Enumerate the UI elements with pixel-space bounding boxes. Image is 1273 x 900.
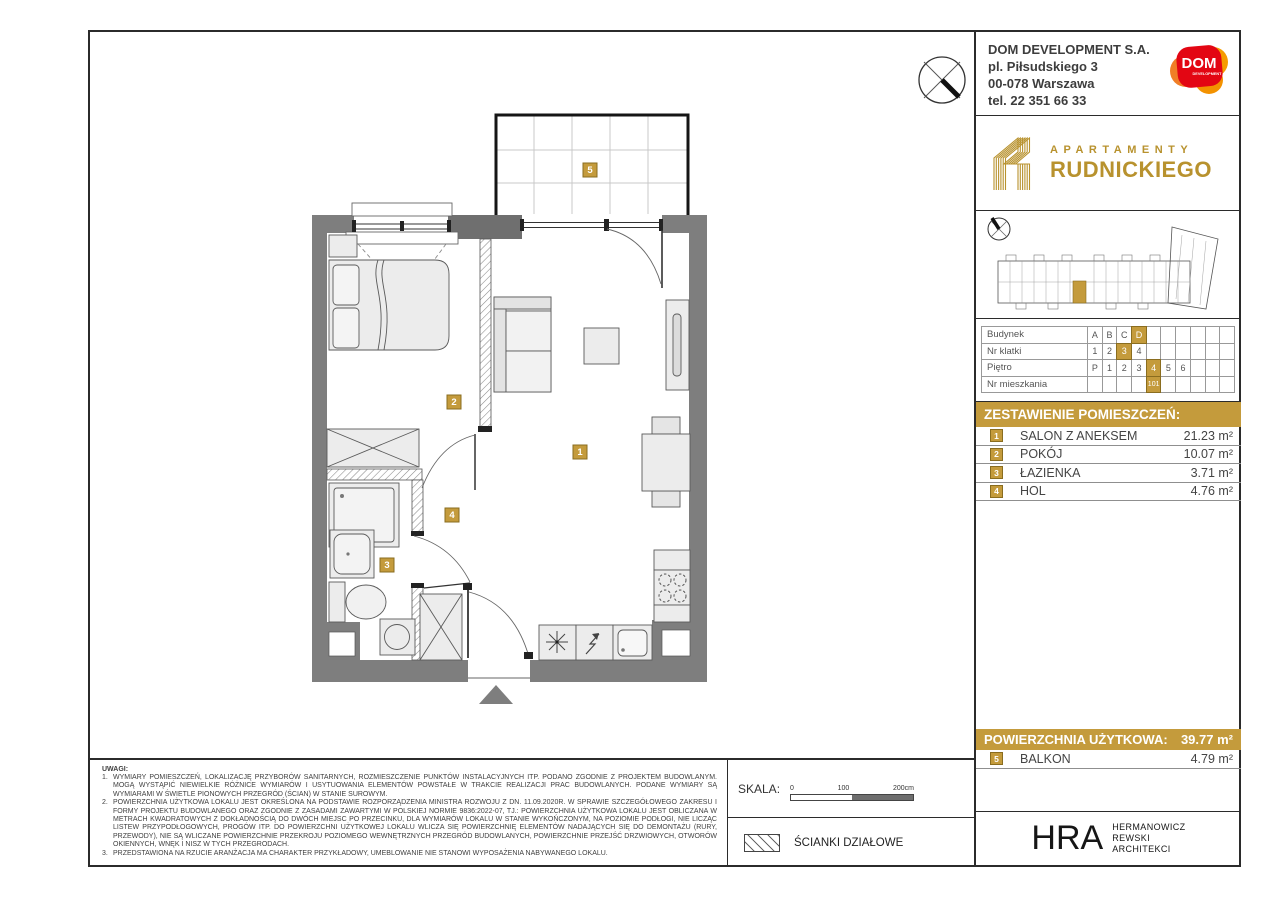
unit-table-cell <box>1146 326 1162 344</box>
unit-table-cell <box>1131 376 1147 394</box>
unit-table-row: Nr klatki1234 <box>982 344 1235 361</box>
unit-table-cell: C <box>1116 326 1132 344</box>
bathroom-door-swing <box>414 536 470 582</box>
scale-bar: 0 100 200cm <box>790 785 914 801</box>
unit-table-cell <box>1116 376 1132 394</box>
partition-hatch-icon <box>744 834 780 852</box>
architect-logo: HRA HERMANOWICZ REWSKI ARCHITEKCI <box>976 811 1241 865</box>
unit-table-cell: 6 <box>1175 359 1191 377</box>
unit-table-row: BudynekABCD <box>982 327 1235 344</box>
architect-line: REWSKI <box>1112 833 1185 844</box>
brand-line-rudnickiego: RUDNICKIEGO <box>1050 157 1212 183</box>
unit-table-cell <box>1160 376 1176 394</box>
rooms-header: ZESTAWIENIE POMIESZCZEŃ: <box>976 402 1241 427</box>
unit-table-cell <box>1102 376 1118 394</box>
salon-furniture <box>494 297 690 660</box>
unit-table-cell: 4 <box>1146 359 1162 377</box>
svg-text:DOM: DOM <box>1182 55 1217 72</box>
unit-table: BudynekABCDNr klatki1234PiętroP123456Nr … <box>976 319 1241 402</box>
scale-tick: 0 <box>790 785 794 792</box>
unit-table-cell <box>1087 376 1103 394</box>
scale-block: SKALA: 0 100 200cm <box>728 760 974 817</box>
room-area: 3.71 m² <box>1191 466 1241 480</box>
kitchen-unit-dishwasher <box>576 625 613 660</box>
balcony-row: 5 BALKON 4.79 m² <box>976 750 1241 769</box>
room-number-badge: 5 <box>990 752 1003 765</box>
room-row: 2 POKÓJ 10.07 m² <box>976 446 1241 465</box>
architect-abbr: HRA <box>1031 819 1103 858</box>
north-compass-icon <box>919 57 965 103</box>
room-number-badge: 4 <box>990 485 1003 498</box>
svg-text:DEVELOPMENT: DEVELOPMENT <box>1193 72 1223 76</box>
room-name: BALKON <box>1020 752 1071 766</box>
room-area: 10.07 m² <box>1184 447 1241 461</box>
rudnickiego-logo-mark <box>990 132 1040 194</box>
unit-table-cell <box>1160 326 1176 344</box>
room-row: 1 SALON Z ANEKSEM 21.23 m² <box>976 427 1241 446</box>
room-row: 3 ŁAZIENKA 3.71 m² <box>976 464 1241 483</box>
legend-block: ŚCIANKI DZIAŁOWE <box>728 817 974 867</box>
note-item: 2.POWIERZCHNIA UŻYTKOWA LOKALU JEST OKRE… <box>102 799 717 849</box>
unit-table-cell: B <box>1102 326 1118 344</box>
label-hol: 4 <box>449 510 455 521</box>
architect-line: ARCHITEKCI <box>1112 844 1185 855</box>
label-salon: 1 <box>577 447 583 458</box>
architect-line: HERMANOWICZ <box>1112 822 1185 833</box>
wall-pier <box>448 215 522 239</box>
unit-table-cell <box>1219 326 1235 344</box>
cooktop <box>654 570 690 605</box>
unit-table-cell: 3 <box>1116 343 1132 361</box>
room-number-badge: 3 <box>990 466 1003 479</box>
room-name: ŁAZIENKA <box>1020 466 1080 480</box>
room-number-badge: 2 <box>990 448 1003 461</box>
unit-table-cell <box>1205 343 1221 361</box>
room-area: 4.76 m² <box>1191 484 1241 498</box>
note-item: 3.PRZEDSTAWIONA NA RZUCIE ARANŻACJA MA C… <box>102 850 717 858</box>
nightstand <box>329 235 357 257</box>
unit-table-row-label: Budynek <box>981 326 1088 344</box>
dining-table <box>642 434 690 491</box>
kitchen-counter <box>654 605 690 622</box>
room-number-badge: 1 <box>990 429 1003 442</box>
unit-table-cell <box>1146 343 1162 361</box>
unit-table-cell <box>1219 376 1235 394</box>
entrance-arrow <box>479 685 513 704</box>
plan-sheet: 1 2 3 4 5 UWAGI: 1.WYMIARY <box>88 30 1241 867</box>
unit-table-cell: 1 <box>1102 359 1118 377</box>
shaft-right <box>662 630 690 656</box>
room-name: POKÓJ <box>1020 447 1062 461</box>
unit-table-cell <box>1219 343 1235 361</box>
title-block-column: DOM DEVELOPMENT S.A. pl. Piłsudskiego 3 … <box>974 32 1241 865</box>
bedroom-door-swing <box>422 435 475 488</box>
unit-table-cell <box>1190 359 1206 377</box>
room-name: HOL <box>1020 484 1046 498</box>
unit-table-row: Nr mieszkania101 <box>982 377 1235 394</box>
snowflake-icon <box>546 631 568 653</box>
pillow <box>333 265 359 305</box>
site-compass-icon <box>988 218 1010 240</box>
toilet-bowl <box>346 585 386 619</box>
unit-table-cell <box>1160 343 1176 361</box>
unit-table-cell: 3 <box>1131 359 1147 377</box>
chair <box>652 491 680 507</box>
unit-table-row-label: Nr mieszkania <box>981 376 1088 394</box>
unit-table-cell <box>1175 376 1191 394</box>
unit-table-cell: 101 <box>1146 376 1162 394</box>
room-row: 4 HOL 4.76 m² <box>976 483 1241 502</box>
unit-table-cell: 2 <box>1116 359 1132 377</box>
project-brand: APARTAMENTY RUDNICKIEGO <box>976 116 1241 211</box>
room-area: 21.23 m² <box>1184 429 1241 443</box>
unit-table-cell <box>1205 326 1221 344</box>
unit-table-cell <box>1175 343 1191 361</box>
unit-table-cell <box>1205 359 1221 377</box>
building-outline <box>998 227 1218 309</box>
unit-table-cell: 5 <box>1160 359 1176 377</box>
unit-table-cell: P <box>1087 359 1103 377</box>
unit-table-cell <box>1175 326 1191 344</box>
hall-furniture <box>420 594 462 660</box>
kitchen-counter <box>654 550 690 570</box>
unit-table-cell <box>1205 376 1221 394</box>
unit-table-cell <box>1190 343 1206 361</box>
bottom-band: UWAGI: 1.WYMIARY POMIESZCZEŃ, LOKALIZACJ… <box>90 758 974 867</box>
unit-table-cell: 2 <box>1102 343 1118 361</box>
chair <box>652 417 680 434</box>
entry-door-swing <box>469 592 529 657</box>
unit-table-cell: 1 <box>1087 343 1103 361</box>
site-key-plan <box>976 211 1241 319</box>
unit-table-cell <box>1190 376 1206 394</box>
unit-table-cell <box>1219 359 1235 377</box>
room-name: SALON Z ANEKSEM <box>1020 429 1137 443</box>
usable-area-label: POWIERZCHNIA UŻYTKOWA: <box>984 732 1168 747</box>
floor-plan-area: 1 2 3 4 5 <box>90 32 974 758</box>
dom-development-logo: DOM DEVELOPMENT <box>1169 40 1229 101</box>
brand-line-apartamenty: APARTAMENTY <box>1050 144 1212 156</box>
floor-plan-drawing: 1 2 3 4 5 <box>90 32 974 758</box>
usable-area-band: POWIERZCHNIA UŻYTKOWA: 39.77 m² <box>976 729 1241 750</box>
label-balkon: 5 <box>587 165 593 176</box>
highlighted-unit <box>1073 281 1086 303</box>
label-pokoj: 2 <box>451 397 456 408</box>
coffee-table <box>584 328 619 364</box>
bedroom-furniture <box>327 235 449 467</box>
scale-tick: 200cm <box>893 785 914 792</box>
sink <box>618 630 647 656</box>
legend-label: ŚCIANKI DZIAŁOWE <box>794 837 903 849</box>
balcony-door-window <box>520 219 663 288</box>
note-item: 1.WYMIARY POMIESZCZEŃ, LOKALIZACJĘ PRZYB… <box>102 774 717 799</box>
usable-area-value: 39.77 m² <box>1181 732 1233 747</box>
unit-table-cell: D <box>1131 326 1147 344</box>
label-lazienka: 3 <box>384 560 389 571</box>
room-area: 4.79 m² <box>1191 752 1241 766</box>
unit-table-cell: A <box>1087 326 1103 344</box>
developer-contact: DOM DEVELOPMENT S.A. pl. Piłsudskiego 3 … <box>976 32 1241 116</box>
unit-table-row-label: Nr klatki <box>981 343 1088 361</box>
notes-title: UWAGI: <box>102 766 717 773</box>
unit-table-cell <box>1190 326 1206 344</box>
unit-table-cell: 4 <box>1131 343 1147 361</box>
balcony-door-swing <box>607 229 661 284</box>
shaft-left <box>329 632 355 656</box>
toilet-cistern <box>329 582 345 622</box>
unit-table-row-label: Piętro <box>981 359 1088 377</box>
notes-block: UWAGI: 1.WYMIARY POMIESZCZEŃ, LOKALIZACJ… <box>90 760 727 867</box>
scale-label: SKALA: <box>738 782 780 796</box>
unit-table-row: PiętroP123456 <box>982 360 1235 377</box>
tv <box>673 314 681 376</box>
scale-tick: 100 <box>838 785 850 792</box>
pillow <box>333 308 359 348</box>
